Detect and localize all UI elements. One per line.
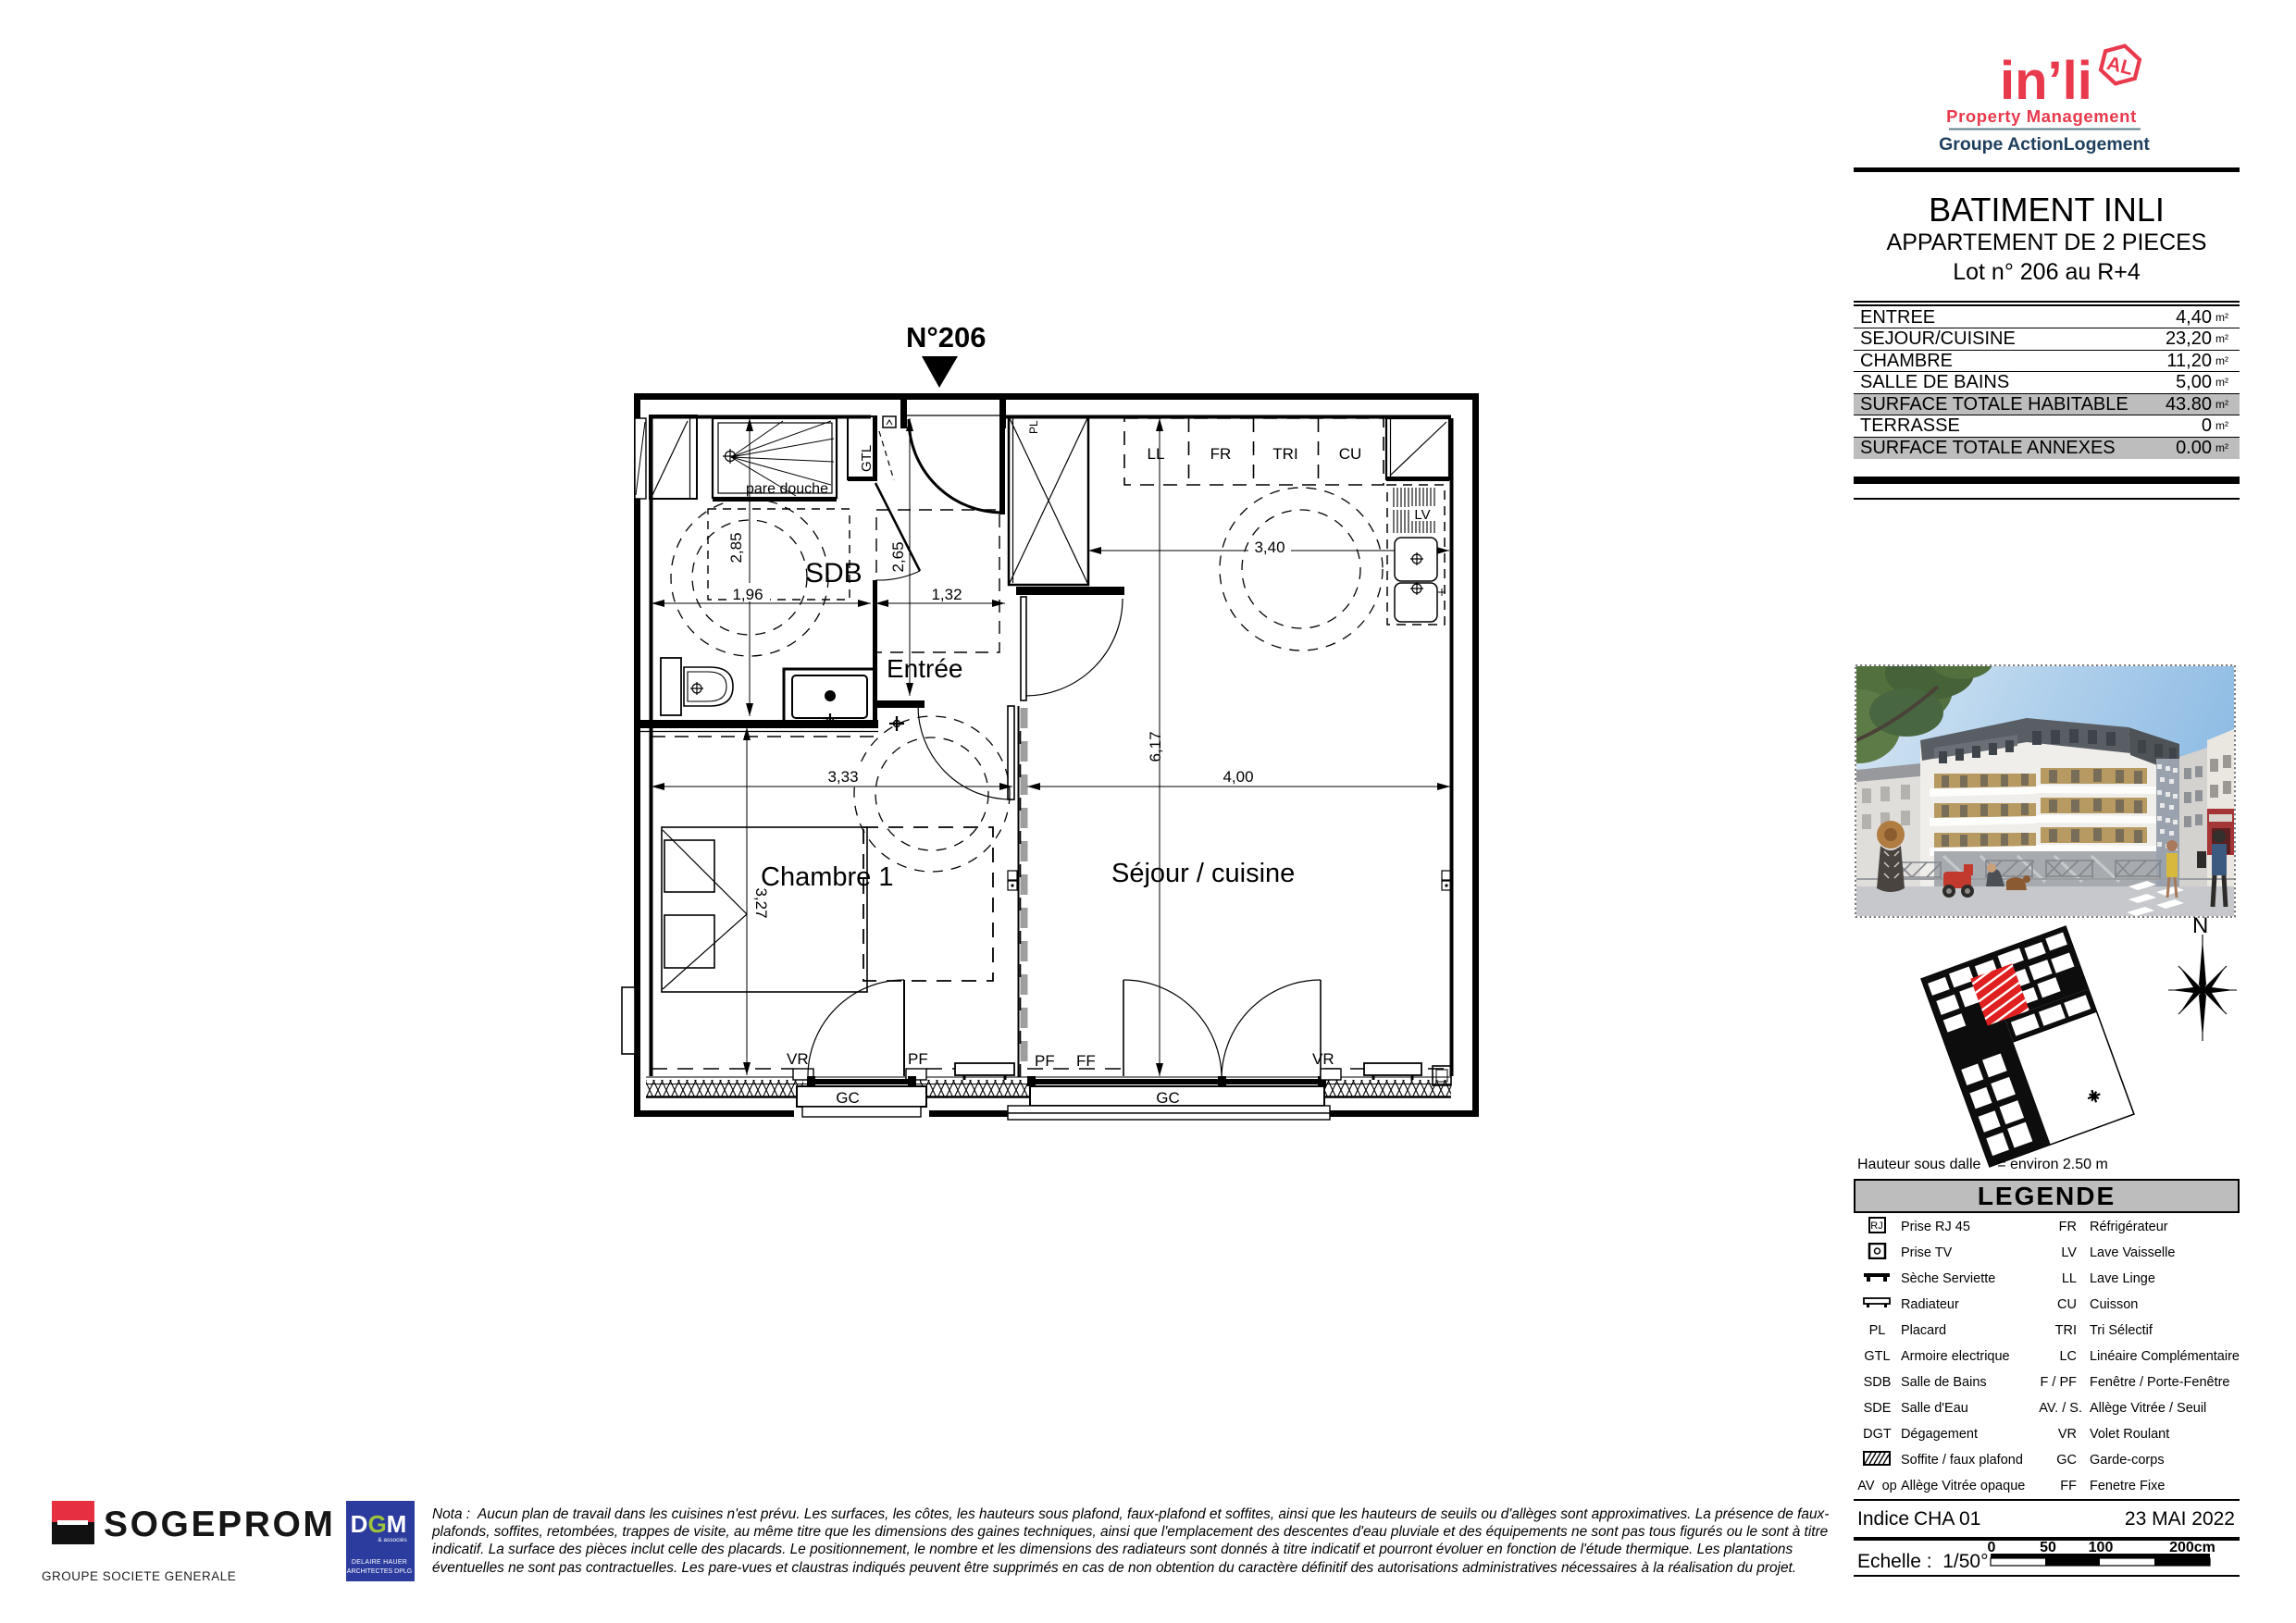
svg-text:VR: VR (787, 1050, 809, 1068)
svg-text:3,33: 3,33 (827, 768, 858, 786)
svg-text:ARCHITECTES DPLG: ARCHITECTES DPLG (347, 1568, 412, 1575)
svg-text:FR: FR (1210, 445, 1232, 463)
svg-text:DGM: DGM (351, 1510, 407, 1538)
svg-text:GTL: GTL (859, 445, 875, 472)
svg-text:2,65: 2,65 (889, 541, 907, 572)
svg-text:Séjour / cuisine: Séjour / cuisine (1111, 859, 1295, 888)
svg-text:CU: CU (1339, 445, 1362, 463)
svg-text:1,96: 1,96 (732, 586, 763, 603)
svg-text:FF: FF (1076, 1052, 1096, 1070)
svg-text:SOGEPROM: SOGEPROM (104, 1505, 336, 1544)
svg-text:Chambre 1: Chambre 1 (761, 862, 893, 892)
svg-text:4,00: 4,00 (1222, 768, 1253, 786)
svg-text:6,17: 6,17 (1147, 731, 1164, 762)
svg-text:GC: GC (1156, 1089, 1180, 1107)
svg-text:GROUPE SOCIETE GENERALE: GROUPE SOCIETE GENERALE (42, 1569, 236, 1583)
svg-text:3,40: 3,40 (1254, 539, 1285, 556)
svg-text:& associés: & associés (378, 1537, 407, 1543)
svg-text:Groupe ActionLogement: Groupe ActionLogement (1939, 134, 2150, 155)
svg-text:DELAIRE HAUER: DELAIRE HAUER (352, 1559, 407, 1566)
svg-text:3,27: 3,27 (752, 887, 770, 918)
svg-text:TRI: TRI (1272, 445, 1297, 463)
svg-text:PF: PF (1035, 1052, 1055, 1070)
svg-text:N°206: N°206 (906, 321, 987, 353)
svg-text:LV: LV (1414, 507, 1430, 523)
svg-text:Entrée: Entrée (887, 654, 963, 683)
svg-text:PF: PF (908, 1050, 928, 1068)
svg-text:GC: GC (836, 1089, 860, 1107)
svg-text:RJ: RJ (1871, 1220, 1883, 1232)
svg-text:N: N (2192, 913, 2208, 938)
svg-text:1,32: 1,32 (931, 586, 962, 603)
svg-text:LL: LL (1148, 445, 1165, 463)
svg-text:Property Management: Property Management (1946, 106, 2137, 126)
svg-text:PL: PL (1027, 420, 1040, 434)
svg-text:pare douche: pare douche (746, 481, 828, 497)
svg-text:VR: VR (1312, 1050, 1334, 1068)
svg-text:SDB: SDB (805, 558, 863, 588)
svg-text:2,85: 2,85 (727, 532, 745, 563)
svg-text:in’li: in’li (2000, 51, 2092, 111)
